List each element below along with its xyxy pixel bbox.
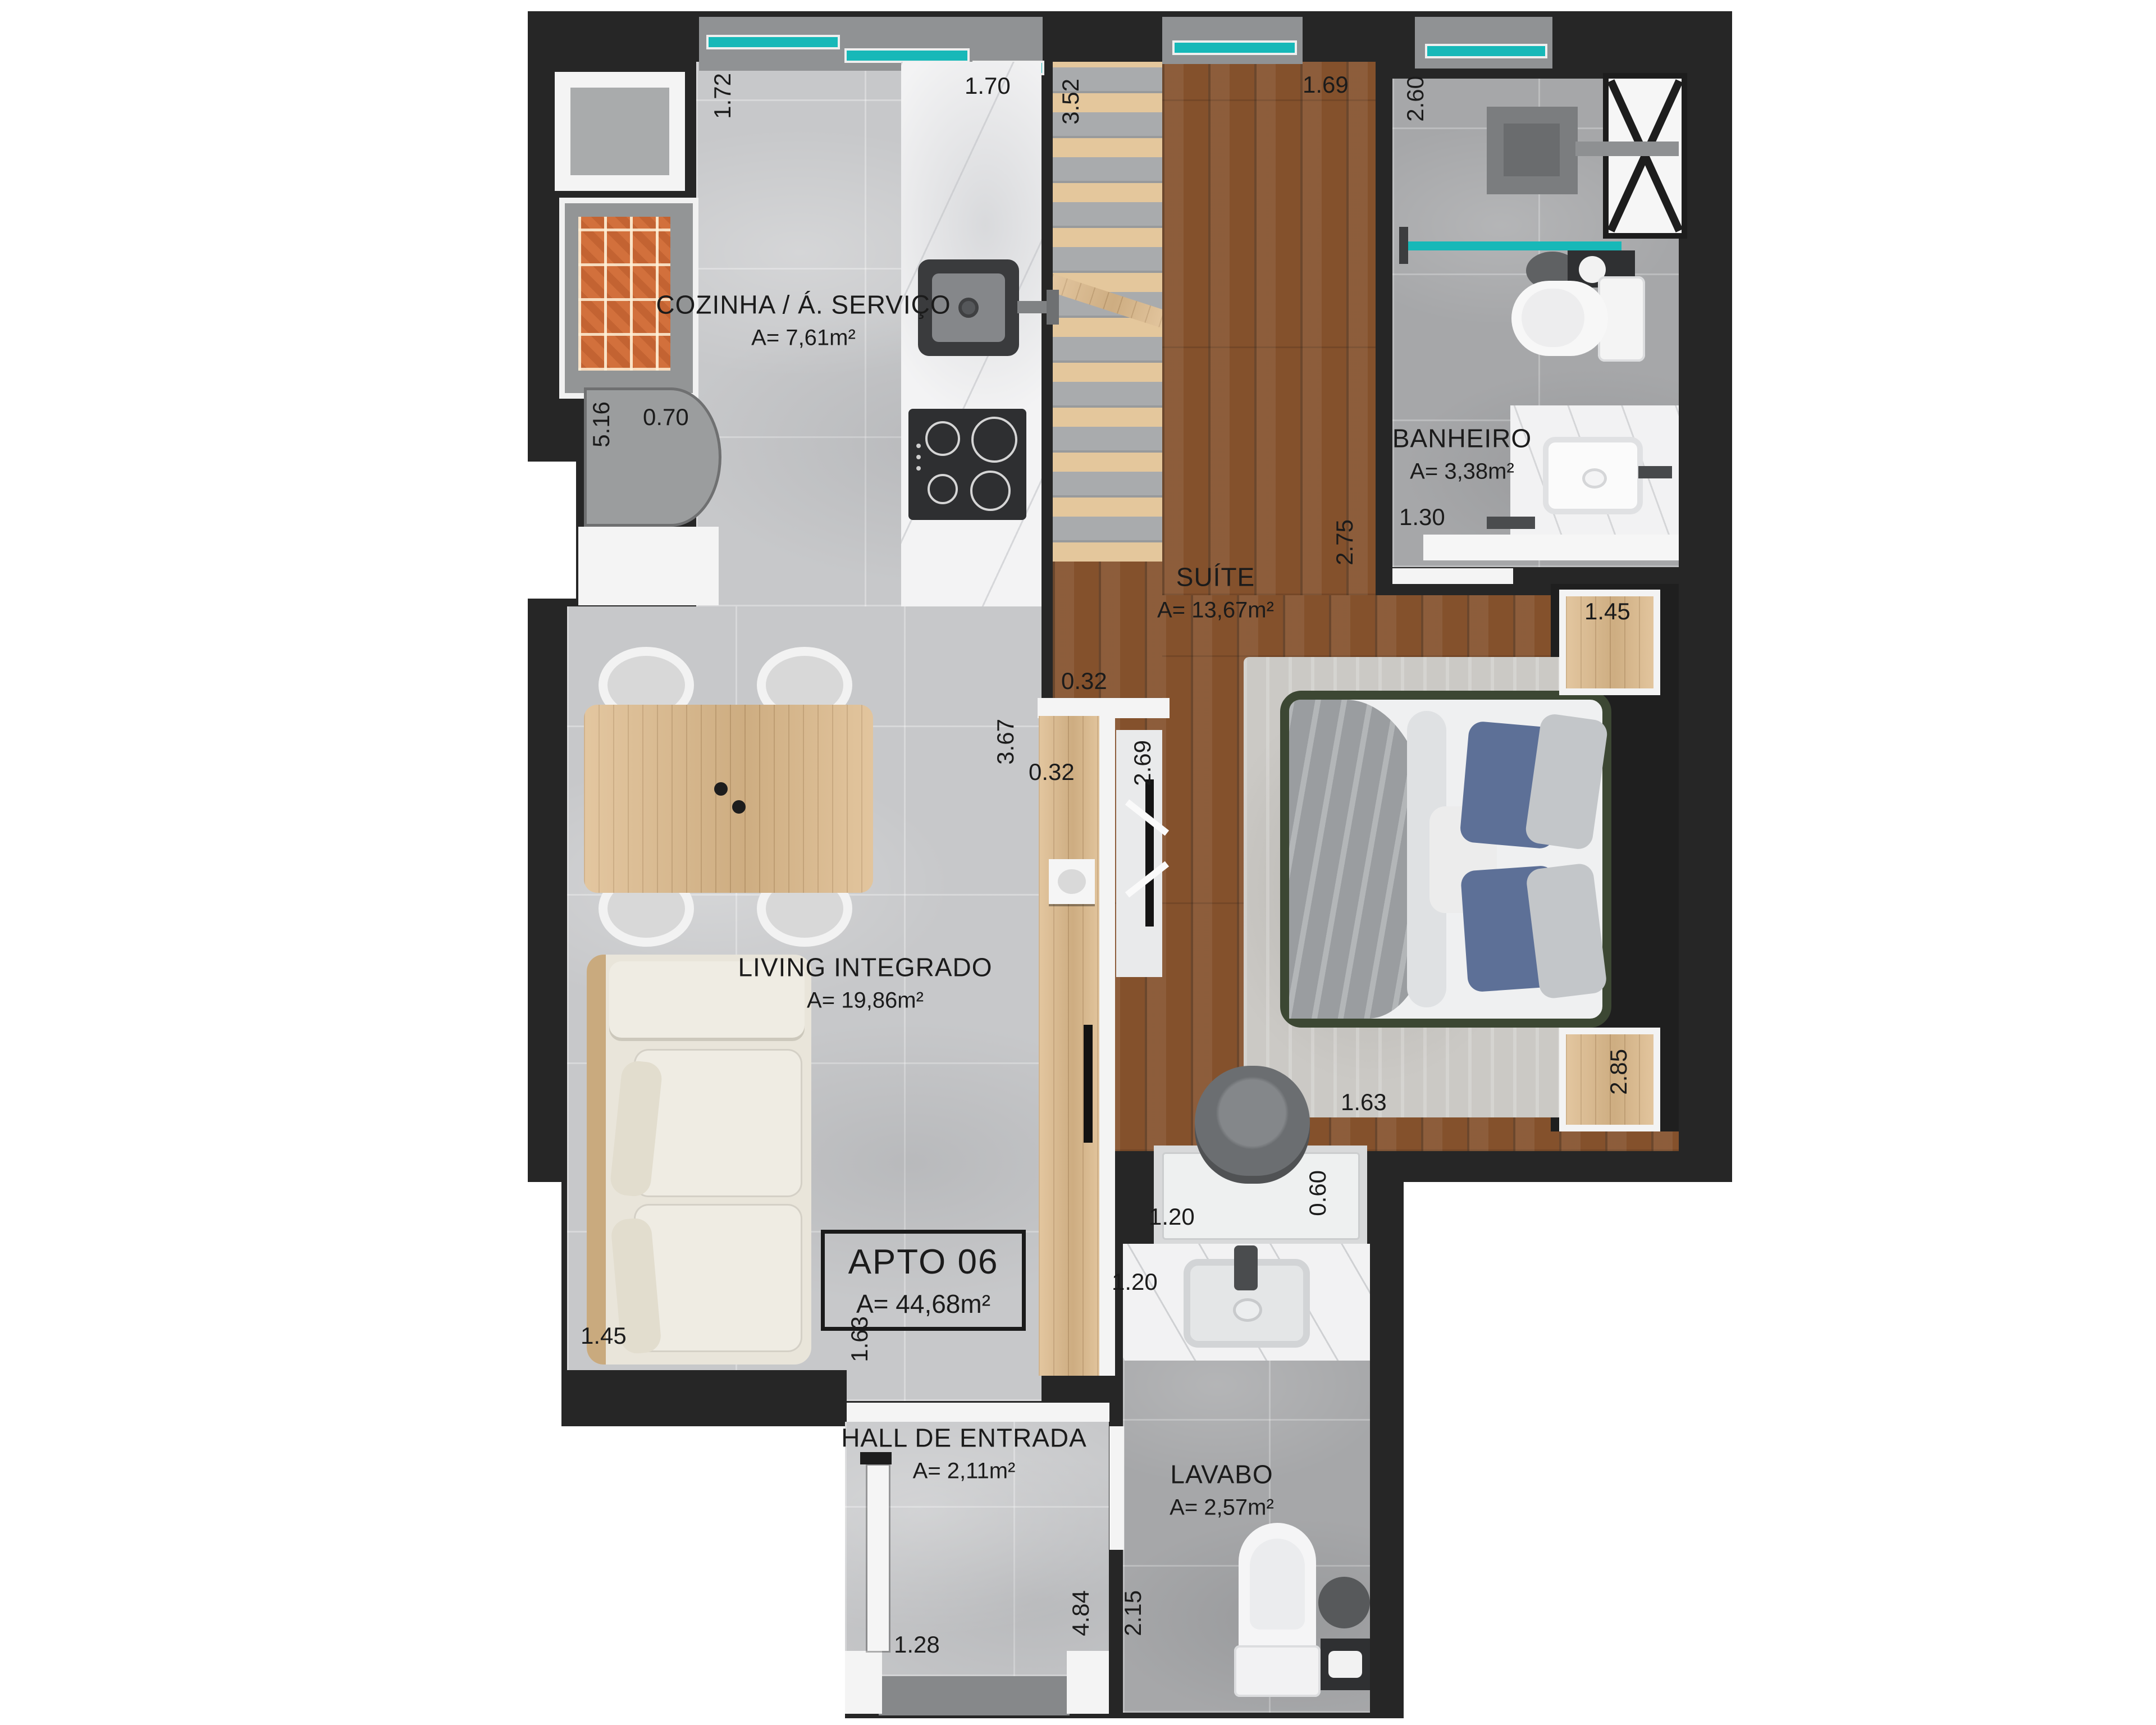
- room-label-cozinha: COZINHA / Á. SERVIÇO A= 7,61m²: [656, 290, 951, 351]
- table-decor-dot: [714, 782, 728, 796]
- deck-pergola: [1053, 62, 1162, 562]
- dim-lavabo-length: 2.15: [1121, 1590, 1145, 1636]
- shower-arm: [1575, 142, 1679, 156]
- dim-desk-width: 1.20: [1149, 1205, 1195, 1229]
- lavabo-faucet: [1234, 1245, 1258, 1290]
- kitchen-window-1: [706, 35, 840, 49]
- floor-suite-corridor: [1162, 62, 1376, 595]
- kitchen-cabinet: [578, 527, 719, 605]
- dim-kitchen-right: 1.70: [965, 74, 1011, 98]
- shower-glass: [1407, 241, 1621, 250]
- room-name: LIVING INTEGRADO: [738, 952, 992, 983]
- dim-tv-wall: 2.69: [1131, 740, 1154, 786]
- room-area: A= 3,38m²: [1392, 459, 1532, 485]
- tp-holder-lavabo: [1321, 1639, 1370, 1690]
- room-area: A= 2,57m²: [1170, 1495, 1274, 1521]
- dining-table: [584, 705, 873, 893]
- dim-suite-top-width: 1.69: [1303, 73, 1349, 97]
- room-name: HALL DE ENTRADA: [841, 1423, 1087, 1453]
- toilet-lavabo-bowl: [1239, 1523, 1316, 1658]
- balcony-band-banheiro: [1415, 17, 1552, 69]
- floor-plan: COZINHA / Á. SERVIÇO A= 7,61m² BANHEIRO …: [0, 0, 2156, 1725]
- room-label-living: LIVING INTEGRADO A= 19,86m²: [738, 952, 992, 1014]
- tv-panel-living: [1039, 716, 1100, 1376]
- dim-panel-wall: 0.32: [1029, 760, 1075, 784]
- burner-icon: [971, 417, 1017, 463]
- dim-fridge-depth: 0.70: [643, 405, 689, 429]
- room-label-hall: HALL DE ENTRADA A= 2,11m²: [841, 1423, 1087, 1484]
- entry-jamb-right: [1067, 1651, 1109, 1714]
- dim-banheiro-width: 1.30: [1399, 505, 1445, 529]
- cooktop-led: [916, 466, 921, 471]
- deck-diagonal-slat: [1053, 274, 1162, 328]
- dim-suite-door-wall: 0.32: [1061, 669, 1107, 693]
- room-area: A= 13,67m²: [1157, 598, 1274, 623]
- toilet-banheiro-bowl: [1511, 281, 1608, 356]
- burner-icon: [928, 474, 958, 504]
- dim-entry-width: 1.28: [894, 1633, 940, 1656]
- skylight-shaft: [570, 88, 669, 175]
- dim-suite-bottom: 1.63: [1341, 1090, 1387, 1114]
- shower-glass-handle: [1399, 227, 1408, 264]
- desk-chair: [1195, 1066, 1310, 1184]
- panel-decor-book: [1049, 859, 1095, 904]
- kitchen-window-2: [844, 48, 970, 63]
- dim-deck-length: 3.52: [1059, 79, 1082, 125]
- wall-notch: [528, 462, 576, 599]
- threshold-banheiro-door: [1392, 568, 1513, 584]
- shower-head: [1487, 107, 1578, 194]
- dim-banheiro-length: 2.60: [1404, 76, 1427, 122]
- cooktop: [908, 409, 1026, 520]
- threshold-lavabo-door: [1109, 1426, 1124, 1550]
- bed: [1280, 691, 1611, 1028]
- banheiro-shelf-faucet: [1487, 517, 1535, 529]
- room-label-lavabo: LAVABO A= 2,57m²: [1170, 1459, 1274, 1521]
- dim-kitchen-left: 1.72: [711, 73, 734, 119]
- room-area: A= 2,11m²: [841, 1459, 1087, 1484]
- burner-icon: [925, 421, 960, 456]
- kitchen-sink-drain: [958, 298, 979, 318]
- room-label-banheiro: BANHEIRO A= 3,38m²: [1392, 423, 1532, 485]
- sofa-frame: [587, 955, 606, 1365]
- room-area: A= 7,61m²: [656, 326, 951, 351]
- dim-nightstand-top: 1.45: [1584, 600, 1630, 623]
- tv-suite: [1145, 779, 1154, 927]
- dim-suite-right-length: 2.75: [1333, 519, 1356, 565]
- room-area: A= 19,86m²: [738, 988, 992, 1014]
- toilet-paper-roll: [1328, 1651, 1362, 1678]
- wall-living-bottom-step: [567, 1370, 847, 1426]
- apartment-area: A= 44,68m²: [856, 1289, 990, 1319]
- dim-desk-depth: 0.60: [1306, 1170, 1330, 1216]
- kitchen-faucet-handle: [1047, 290, 1059, 325]
- burner-icon: [970, 471, 1011, 511]
- toilet-lavabo-seat: [1250, 1539, 1305, 1630]
- shower-head-inner: [1504, 124, 1560, 176]
- banheiro-vanity: [1510, 405, 1679, 545]
- cooktop-led: [916, 455, 921, 459]
- dim-living-length: 3.67: [994, 719, 1017, 765]
- deck-window: [1172, 40, 1297, 55]
- table-decor-dot: [732, 800, 746, 814]
- room-label-suite: SUÍTE A= 13,67m²: [1157, 562, 1274, 623]
- dim-hall-length: 4.84: [1069, 1590, 1093, 1636]
- entry-jamb-left: [845, 1651, 882, 1714]
- entry-door-leaf: [867, 1466, 889, 1651]
- apartment-name: APTO 06: [848, 1242, 999, 1282]
- banheiro-shelf: [1423, 535, 1679, 560]
- banheiro-faucet: [1638, 466, 1672, 478]
- sofa: [587, 955, 811, 1365]
- dim-lavabo-counter: 1.20: [1112, 1270, 1158, 1294]
- lavabo-basin-drain: [1233, 1298, 1262, 1322]
- toilet-banheiro-seat: [1522, 289, 1584, 347]
- toilet-lavabo-tank: [1234, 1645, 1321, 1697]
- trash-bin-lavabo: [1318, 1577, 1370, 1628]
- dim-fridge-run: 5.16: [590, 401, 613, 448]
- room-name: BANHEIRO: [1392, 423, 1532, 454]
- entry-mat: [879, 1676, 1070, 1715]
- room-name: SUÍTE: [1157, 562, 1274, 592]
- banheiro-basin-drain: [1582, 468, 1607, 489]
- tv-living: [1084, 1025, 1093, 1143]
- banheiro-basin: [1543, 437, 1643, 514]
- banheiro-window: [1425, 44, 1547, 58]
- threshold-hall: [847, 1403, 1109, 1422]
- panel-decor-plate: [1058, 869, 1086, 894]
- room-name: COZINHA / Á. SERVIÇO: [656, 290, 951, 320]
- room-name: LAVABO: [1170, 1459, 1274, 1490]
- cooktop-led: [916, 444, 921, 448]
- dim-sofa-width: 1.45: [581, 1324, 627, 1348]
- dim-suite-width: 2.85: [1607, 1049, 1630, 1095]
- threshold-suite-entry: [1038, 698, 1170, 718]
- dim-living-hall: 1.63: [848, 1316, 871, 1362]
- apartment-title-box: APTO 06 A= 44,68m²: [821, 1230, 1026, 1331]
